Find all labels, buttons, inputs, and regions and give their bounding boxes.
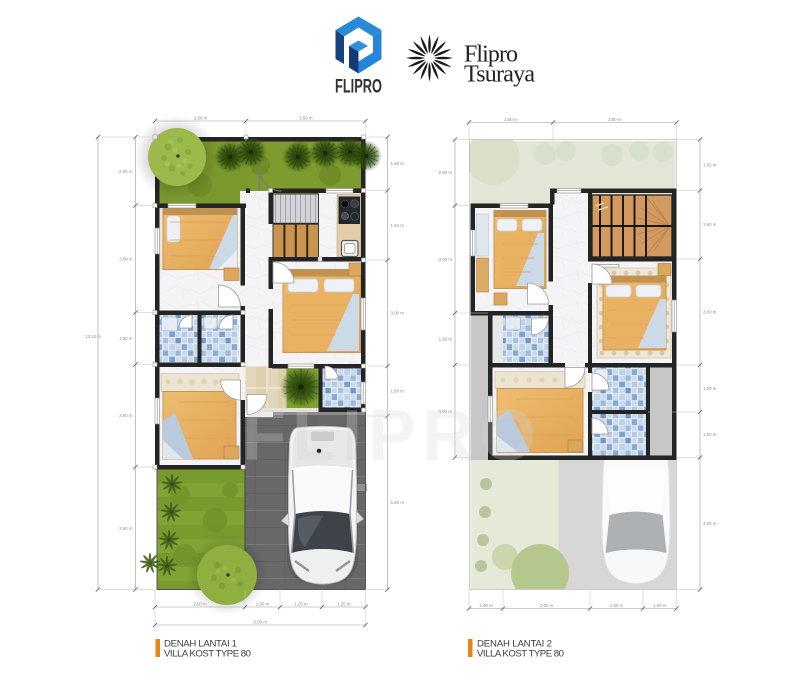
svg-text:3.00 m: 3.00 m (439, 257, 453, 262)
svg-text:VILLA KOST TYPE 80: VILLA KOST TYPE 80 (477, 649, 564, 660)
svg-text:2.00 m: 2.00 m (439, 170, 453, 175)
svg-text:1.00 m: 1.00 m (653, 603, 667, 608)
svg-text:2.50 m: 2.50 m (194, 116, 208, 121)
svg-text:13.10 m: 13.10 m (85, 334, 101, 339)
svg-text:2.00 m: 2.00 m (119, 169, 133, 174)
svg-text:1.50 m: 1.50 m (439, 337, 453, 342)
svg-text:1.25 m: 1.25 m (337, 602, 351, 607)
svg-text:2.50 m: 2.50 m (540, 603, 554, 608)
svg-text:3.00 m: 3.00 m (119, 413, 133, 418)
svg-text:Tsuraya: Tsuraya (464, 62, 535, 88)
svg-text:FLIPRO: FLIPRO (242, 396, 542, 476)
svg-text:1.25 m: 1.25 m (294, 602, 308, 607)
svg-text:1.50 m: 1.50 m (119, 336, 133, 341)
svg-text:1.50 m: 1.50 m (391, 389, 405, 394)
svg-text:1.50 m: 1.50 m (703, 432, 717, 437)
svg-text:1.65 m: 1.65 m (703, 163, 717, 168)
svg-text:2.50 m: 2.50 m (193, 602, 207, 607)
svg-text:3.00 m: 3.00 m (119, 257, 133, 262)
svg-text:FLIPRO: FLIPRO (335, 77, 382, 98)
svg-text:3.00 m: 3.00 m (391, 311, 405, 316)
svg-text:5.00 m: 5.00 m (391, 500, 405, 505)
svg-text:3.00 m: 3.00 m (703, 310, 717, 315)
svg-text:1.00 m: 1.00 m (703, 386, 717, 391)
svg-text:1.94 m: 1.94 m (391, 223, 405, 228)
svg-text:4.00 m: 4.00 m (703, 521, 717, 526)
svg-text:6.00 m: 6.00 m (253, 620, 267, 625)
svg-text:1.90 m: 1.90 m (703, 222, 717, 227)
svg-text:1.00 m: 1.00 m (256, 602, 270, 607)
svg-text:3.50 m: 3.50 m (608, 117, 622, 122)
svg-text:2.50 m: 2.50 m (504, 117, 518, 122)
svg-text:1.50 m: 1.50 m (610, 603, 624, 608)
svg-text:1.00 m: 1.00 m (479, 603, 493, 608)
svg-text:VILLA KOST TYPE 80: VILLA KOST TYPE 80 (164, 649, 251, 660)
svg-text:1.60 m: 1.60 m (391, 161, 405, 166)
svg-text:3.50 m: 3.50 m (119, 526, 133, 531)
svg-text:3.50 m: 3.50 m (299, 116, 313, 121)
